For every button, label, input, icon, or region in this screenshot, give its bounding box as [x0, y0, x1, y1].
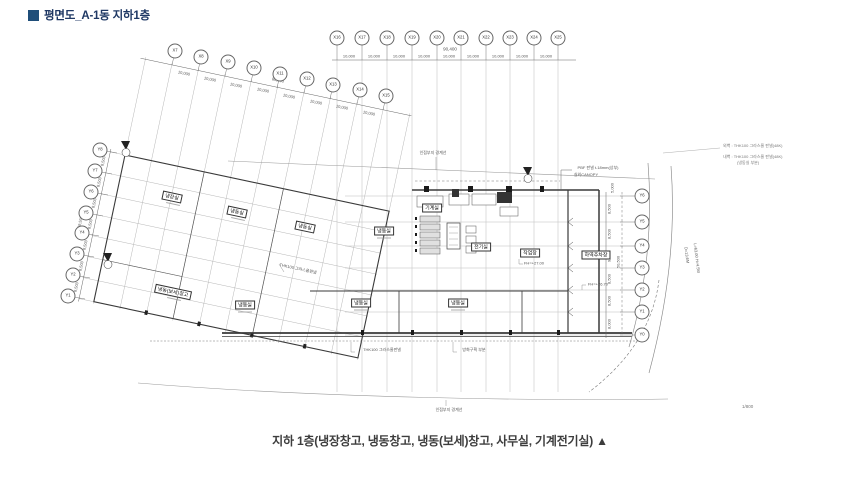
grid-bubble-x8: X8	[194, 50, 209, 65]
dim-top-bay: 10,000	[467, 54, 479, 59]
page-title: 평면도_A-1동 지하1층	[44, 7, 150, 23]
room-label-electric-room: 전기실	[471, 243, 491, 252]
note-exterior-wall: 외벽 : THK100 그라스울 판넬(48K)	[723, 143, 782, 149]
room-area-text	[354, 310, 368, 311]
room-area-text	[451, 310, 465, 311]
dim-top-bay: 10,000	[540, 54, 552, 59]
grid-bubble-y5l: Y5	[79, 206, 94, 221]
level-note-workshop: FH=+27.00	[524, 261, 544, 266]
room-label-machine-room: 기계실	[422, 204, 442, 213]
rotated-wing	[78, 54, 411, 360]
grid-bubble-y1l: Y1	[61, 289, 76, 304]
grid-bubble-x16: X16	[330, 31, 345, 46]
grid-bubble-y0r: Y0	[635, 328, 650, 343]
grid-bubble-y3r: Y3	[635, 261, 650, 276]
note-boundary-top: 인접부지 경계선	[420, 150, 447, 156]
grid-bubble-y3l: Y3	[70, 247, 85, 262]
grid-bubble-x10: X10	[247, 61, 262, 76]
room-area-text	[238, 312, 252, 313]
floorplan-page: 평면도_A-1동 지하1층	[0, 0, 850, 496]
grid-bubble-x18: X18	[380, 31, 395, 46]
room-label-freezer: 냉동실	[235, 301, 255, 310]
grid-bubble-x23: X23	[503, 31, 518, 46]
grid-bubble-y2l: Y2	[66, 268, 81, 283]
dim-top-bay: 10,000	[492, 54, 504, 59]
dim-top-bay: 10,000	[516, 54, 528, 59]
room-label-loading-dock: 하역주차장	[581, 251, 610, 260]
room-label-freezer: 냉동실	[351, 299, 371, 308]
grid-bubble-y1r: Y1	[635, 305, 650, 320]
dim-right-bay: 8,000	[607, 319, 612, 329]
grid-bubble-x11: X11	[273, 67, 288, 82]
note-canopy-panel: PBF 판넬 t-18mm(상부)	[578, 165, 619, 171]
note-boundary-bottom: 인접부지 경계선	[436, 407, 463, 413]
grid-bubble-y4l: Y4	[75, 226, 90, 241]
dim-top-bay: 10,000	[418, 54, 430, 59]
dim-right-bay: 8,500	[607, 204, 612, 214]
dock-door-arcs	[568, 218, 573, 316]
grid-bubble-y7: Y7	[88, 164, 103, 179]
room-label-freezer: 냉동실	[374, 227, 394, 236]
grid-bubble-x19: X19	[405, 31, 420, 46]
room-area-text	[377, 238, 391, 239]
grid-bubble-x22: X22	[479, 31, 494, 46]
room-label-workshop: 작업장	[520, 249, 540, 258]
grid-bubble-y5r: Y5	[635, 215, 650, 230]
note-leaders	[279, 148, 720, 352]
dim-right-bay: 8,500	[607, 296, 612, 306]
grid-bubble-x12: X12	[300, 72, 315, 87]
grid-bubble-x9: X9	[221, 55, 236, 70]
grid-bubble-x13: X13	[326, 78, 341, 93]
dimension-lines	[79, 58, 607, 338]
note-fire-zone: 방화구획 부분	[462, 347, 485, 353]
dim-top-bay: 10,000	[343, 54, 355, 59]
grid-bubble-x7: X7	[168, 44, 183, 59]
dim-right-top: 5,000	[610, 183, 615, 193]
grid-bubble-x25: X25	[551, 31, 566, 46]
grid-bubble-y8: Y8	[93, 143, 108, 158]
grid-bubble-x15: X15	[379, 89, 394, 104]
grid-bubble-y4r: Y4	[635, 239, 650, 254]
grid-bubble-y2r: Y2	[635, 283, 650, 298]
dim-right-total: 50,500	[616, 256, 621, 268]
grid-bubble-y6l: Y6	[84, 185, 99, 200]
page-header: 평면도_A-1동 지하1층	[28, 7, 150, 23]
dim-right-bay: 8,500	[607, 229, 612, 239]
scale-label: 1/800	[742, 404, 753, 409]
grid-bubble-x14: X14	[353, 83, 368, 98]
grid-bubble-x17: X17	[355, 31, 370, 46]
grid-lines-horizontal	[345, 196, 623, 335]
title-bullet-icon	[28, 10, 39, 21]
drawing-caption: 지하 1층(냉장창고, 냉동창고, 냉동(보세)창고, 사무실, 기계전기실) …	[90, 432, 790, 449]
grid-bubble-y6r: Y6	[635, 189, 650, 204]
dim-top-bay: 10,000	[443, 54, 455, 59]
level-note-dock: FH=+26.70	[588, 282, 608, 287]
room-label-freezer: 냉동실	[448, 299, 468, 308]
dim-top-bay: 10,000	[368, 54, 380, 59]
dim-top-total: 90,400	[443, 47, 457, 52]
grid-bubble-x20: X20	[430, 31, 445, 46]
floorplan-drawing	[0, 0, 850, 496]
dim-top-bay: 10,000	[393, 54, 405, 59]
note-panel-bottom: THK100 그라스울판넬	[363, 347, 401, 353]
note-interior-wall-sub: (냉동실 부분)	[737, 160, 759, 166]
note-canopy: 실외CANOPY	[574, 172, 598, 178]
grid-bubble-x21: X21	[454, 31, 469, 46]
grid-bubble-x24: X24	[527, 31, 542, 46]
